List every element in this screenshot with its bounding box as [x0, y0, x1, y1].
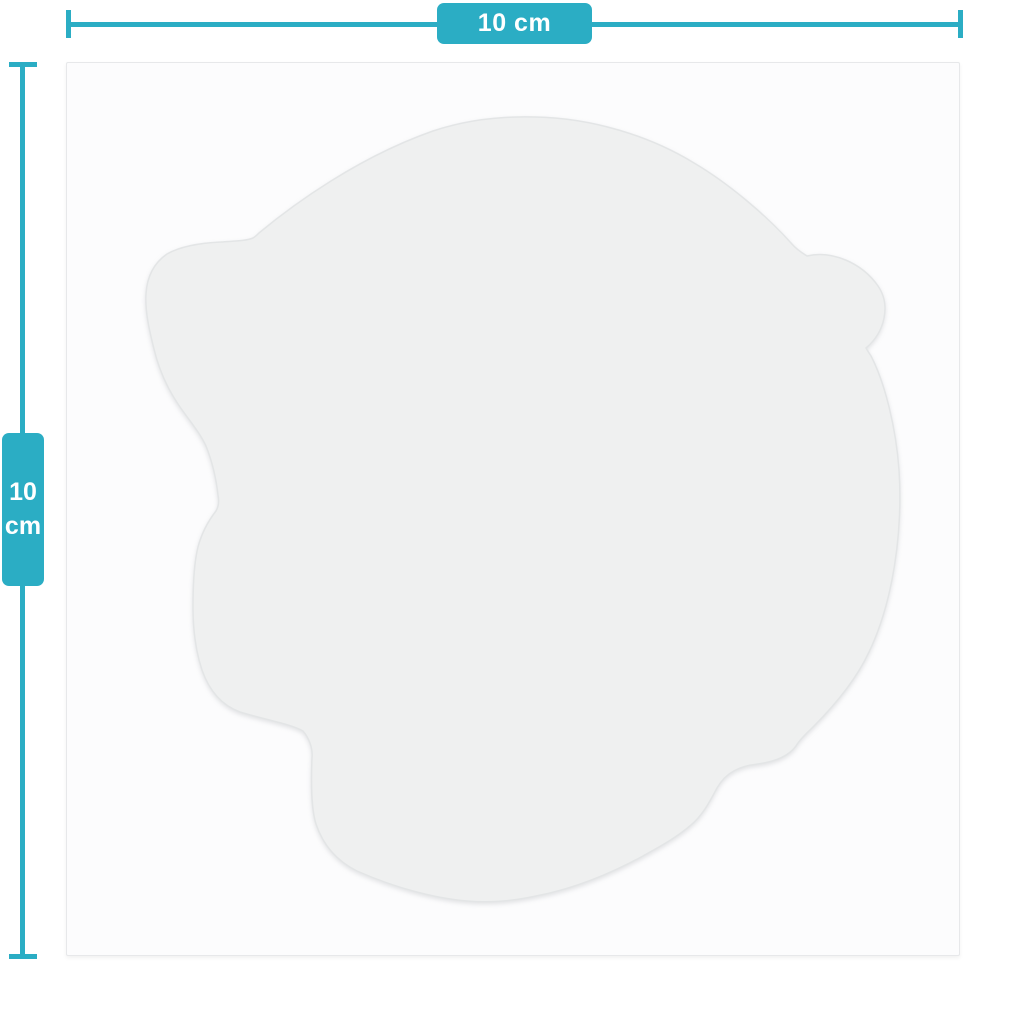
width-dimension-end-tick-right — [958, 10, 963, 38]
height-dimension-unit: cm — [5, 510, 41, 544]
product-size-diagram: 10 cm 10 cm — [0, 0, 1024, 1024]
height-dimension-label: 10 cm — [2, 433, 44, 586]
height-dimension-end-tick-bottom — [9, 954, 37, 959]
sticker-sheet — [66, 62, 960, 956]
height-dimension-end-tick-top — [9, 62, 37, 67]
width-dimension-end-tick-left — [66, 10, 71, 38]
height-dimension-value: 10 — [9, 476, 37, 510]
width-dimension-label: 10 cm — [437, 3, 592, 44]
